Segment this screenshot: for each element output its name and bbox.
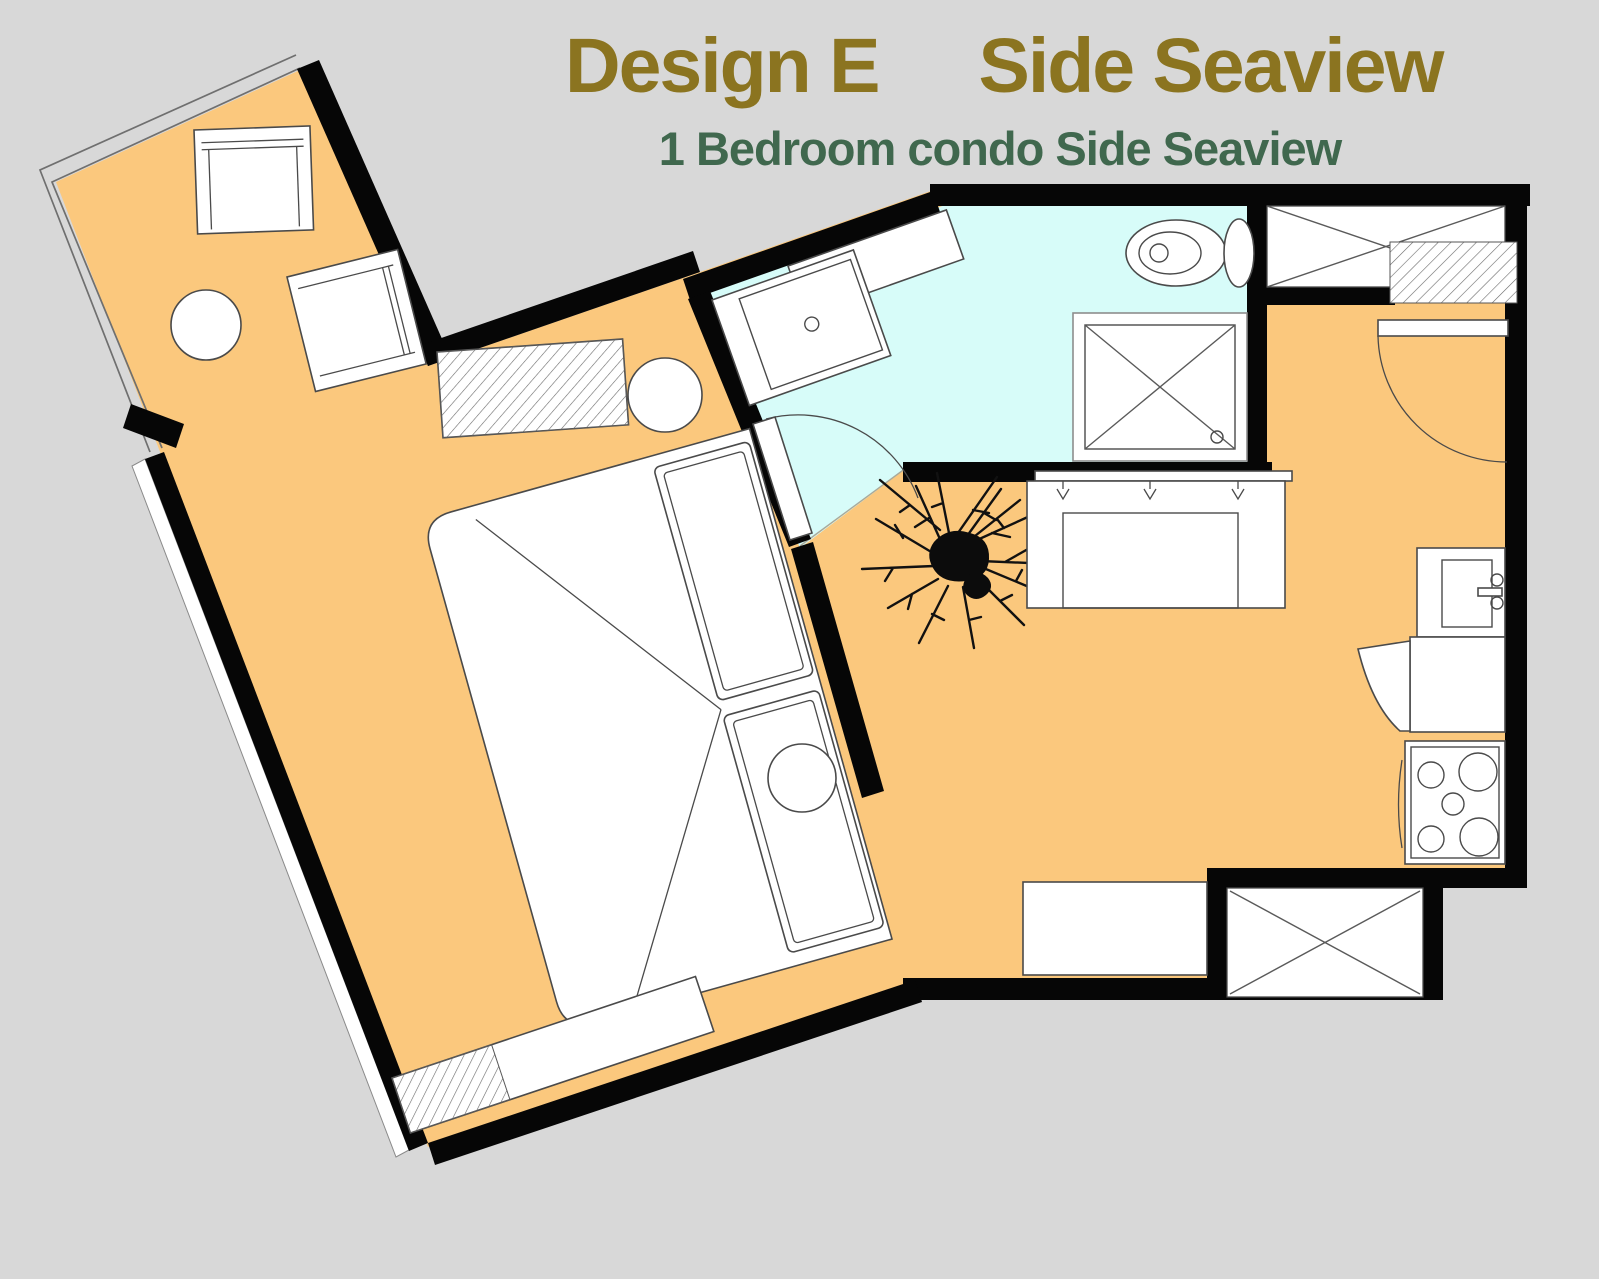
- kitchen-counter: [1410, 637, 1505, 732]
- stove: [1399, 741, 1506, 864]
- nightstand-top: [628, 358, 702, 432]
- wall-living-bottom: [903, 978, 1227, 1000]
- wall-closet-tr-bottom: [1262, 287, 1395, 305]
- floor-plan-drawing: [0, 0, 1599, 1279]
- balcony-chair-1: [194, 126, 314, 234]
- entry-mat-hatch: [1390, 242, 1517, 303]
- wall-closet-br-right: [1423, 868, 1443, 1000]
- wall-top: [930, 184, 1530, 206]
- balcony-table: [171, 290, 241, 360]
- side-counter: [1023, 882, 1207, 975]
- sofa: [1027, 471, 1292, 608]
- kitchen-sink: [1417, 548, 1505, 637]
- wall-kitchen-bottom: [1207, 868, 1527, 888]
- nightstand-bottom: [768, 744, 836, 812]
- bedroom-wardrobe-hatch: [437, 339, 629, 438]
- shower: [1073, 313, 1247, 461]
- floor-plan-page: Design E Side Seaview 1 Bedroom condo Si…: [0, 0, 1599, 1279]
- closet-bottom-right: [1227, 888, 1423, 997]
- toilet: [1126, 219, 1254, 287]
